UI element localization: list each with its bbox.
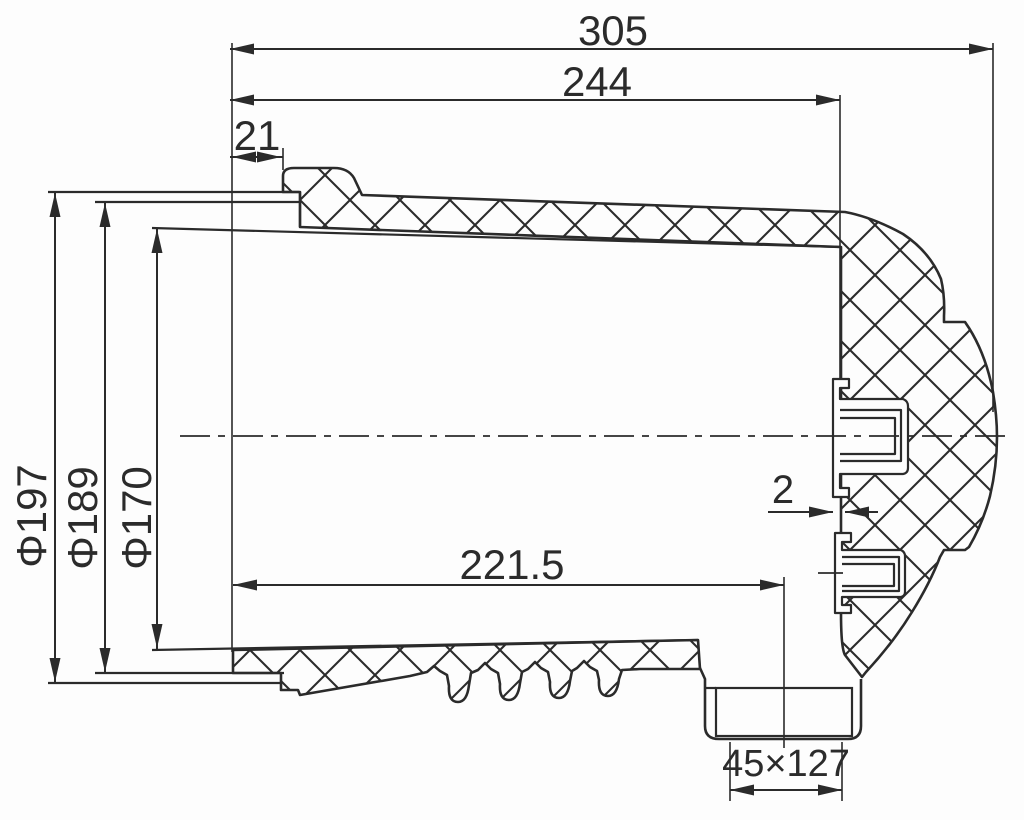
drawing-page: 30524421Φ197Φ189Φ170221.5245×127 bbox=[0, 0, 1024, 820]
technical-drawing: 30524421Φ197Φ189Φ170221.5245×127 bbox=[0, 0, 1024, 820]
dim-label-d189: Φ189 bbox=[59, 466, 106, 570]
dim-label-2215: 221.5 bbox=[459, 541, 564, 588]
dim-label-d197: Φ197 bbox=[8, 464, 55, 568]
dim-label-d170: Φ170 bbox=[113, 466, 160, 570]
dim-label-45x127: 45×127 bbox=[722, 743, 850, 785]
dim-label-244: 244 bbox=[562, 58, 632, 105]
dim-label-305: 305 bbox=[578, 7, 648, 54]
dim-label-21: 21 bbox=[234, 112, 281, 159]
dim-label-2: 2 bbox=[772, 468, 794, 512]
